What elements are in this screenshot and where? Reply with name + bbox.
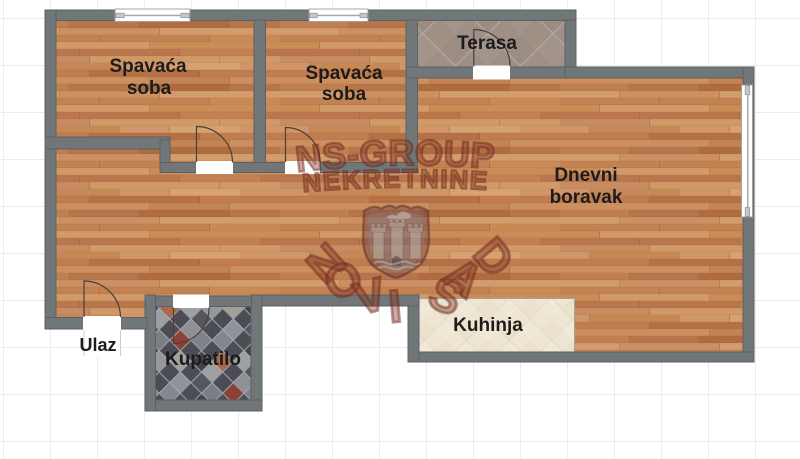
svg-text:boravak: boravak	[550, 187, 623, 208]
svg-text:soba: soba	[127, 78, 172, 99]
svg-text:Spavaća: Spavaća	[109, 56, 187, 77]
svg-text:Terasa: Terasa	[457, 33, 517, 54]
svg-text:NEKRETNINE: NEKRETNINE	[301, 163, 488, 198]
svg-text:Kuhinja: Kuhinja	[453, 315, 523, 336]
svg-text:Ulaz: Ulaz	[79, 335, 116, 355]
svg-text:Kupatilo: Kupatilo	[165, 349, 241, 370]
svg-text:Spavaća: Spavaća	[305, 63, 383, 84]
svg-text:Dnevni: Dnevni	[554, 165, 617, 186]
svg-text:soba: soba	[322, 84, 367, 105]
